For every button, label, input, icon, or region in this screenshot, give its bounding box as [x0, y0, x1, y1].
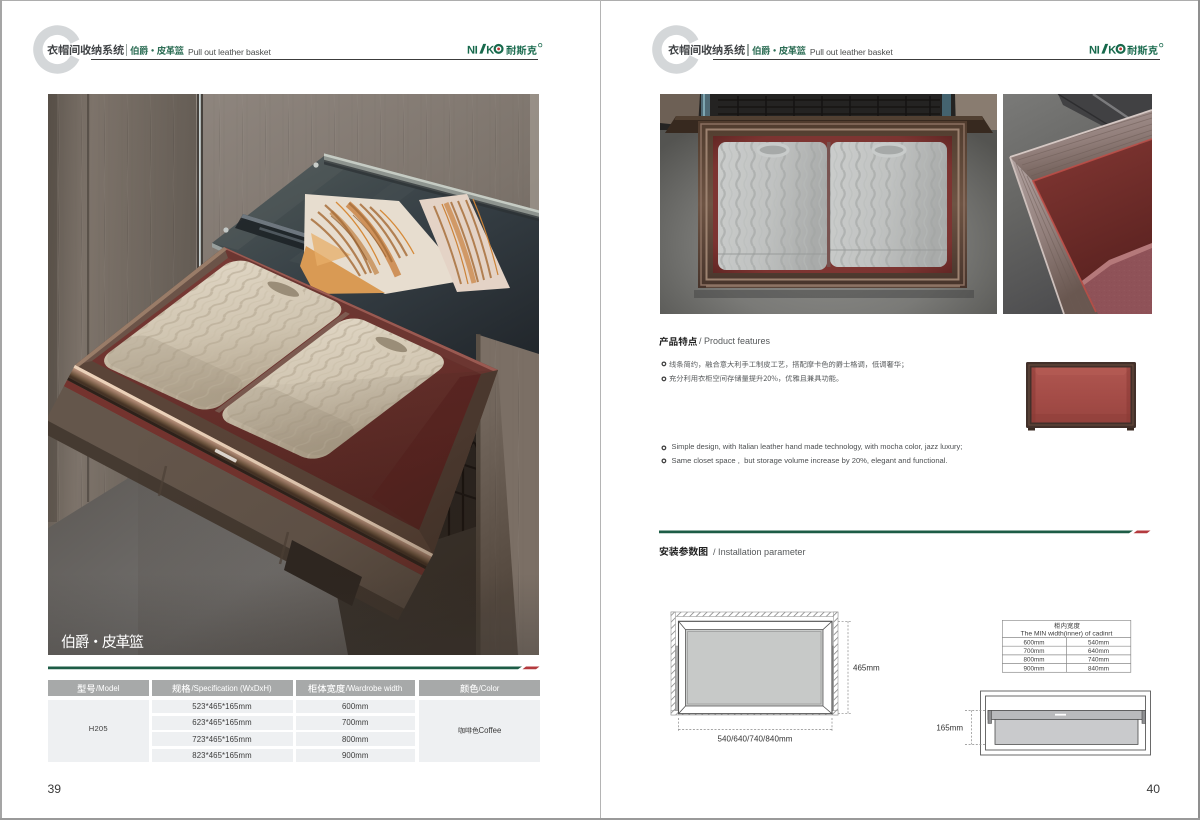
svg-text:540mm: 540mm	[1088, 639, 1109, 646]
svg-text:600mm: 600mm	[1024, 639, 1045, 646]
svg-text:900mm: 900mm	[1024, 665, 1045, 672]
svg-text:700mm: 700mm	[1024, 648, 1045, 655]
svg-text:800mm: 800mm	[1024, 657, 1045, 664]
svg-text:465mm: 465mm	[853, 663, 880, 672]
svg-text:740mm: 740mm	[1088, 657, 1109, 664]
svg-text:640mm: 640mm	[1088, 648, 1109, 655]
svg-text:The MIN width(inner) of cadinr: The MIN width(inner) of cadinrt	[1021, 630, 1113, 637]
svg-text:840mm: 840mm	[1088, 665, 1109, 672]
svg-text:165mm: 165mm	[936, 723, 963, 732]
svg-text:540/640/740/840mm: 540/640/740/840mm	[717, 734, 792, 743]
